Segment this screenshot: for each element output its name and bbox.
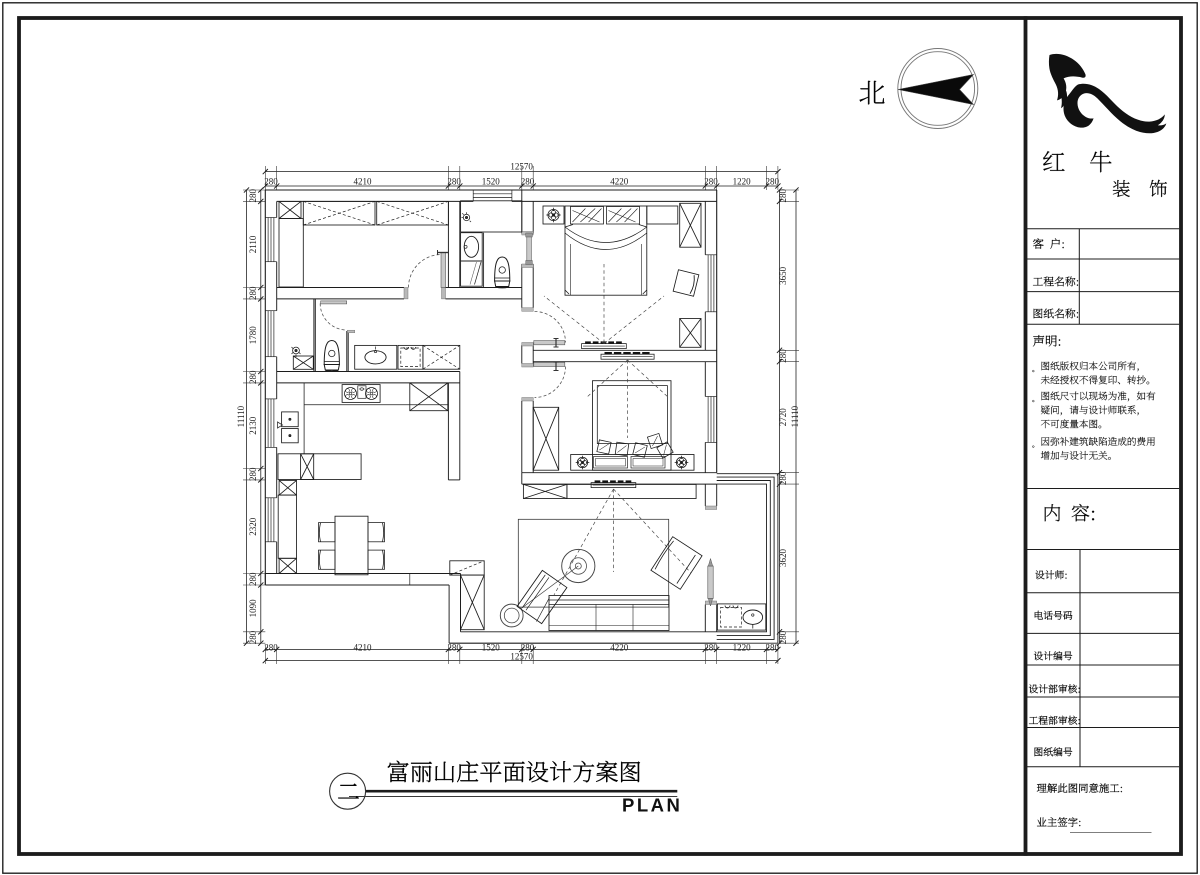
- svg-text:2130: 2130: [248, 416, 258, 435]
- svg-text:1220: 1220: [733, 176, 752, 186]
- svg-text:4220: 4220: [610, 643, 629, 653]
- svg-text:280: 280: [248, 630, 258, 644]
- svg-text:280: 280: [521, 176, 535, 186]
- svg-text:12570: 12570: [510, 651, 533, 661]
- svg-text:280: 280: [248, 188, 258, 202]
- svg-text:3650: 3650: [778, 266, 788, 285]
- svg-text:280: 280: [704, 643, 718, 653]
- svg-text:280: 280: [778, 471, 788, 485]
- svg-text:280: 280: [765, 176, 779, 186]
- svg-text:3620: 3620: [778, 549, 788, 568]
- svg-text:4210: 4210: [354, 643, 373, 653]
- svg-text:2110: 2110: [248, 235, 258, 253]
- svg-text:1220: 1220: [733, 643, 752, 653]
- svg-text:2720: 2720: [778, 408, 788, 427]
- svg-text:280: 280: [248, 370, 258, 384]
- svg-text:280: 280: [264, 643, 278, 653]
- svg-text:280: 280: [248, 286, 258, 300]
- svg-text:11110: 11110: [790, 405, 800, 427]
- svg-text:1520: 1520: [482, 176, 501, 186]
- svg-text:1780: 1780: [248, 326, 258, 345]
- svg-text:PLAN: PLAN: [622, 795, 682, 816]
- svg-text:280: 280: [778, 630, 788, 644]
- svg-text:11110: 11110: [236, 405, 246, 427]
- svg-text:280: 280: [778, 188, 788, 202]
- svg-text:280: 280: [778, 349, 788, 363]
- svg-text:12570: 12570: [510, 161, 533, 171]
- svg-text:280: 280: [264, 176, 278, 186]
- svg-text:280: 280: [447, 643, 461, 653]
- svg-text:280: 280: [704, 176, 718, 186]
- svg-text:280: 280: [447, 176, 461, 186]
- svg-text:2320: 2320: [248, 517, 258, 536]
- svg-text:280: 280: [248, 572, 258, 586]
- svg-text:1520: 1520: [482, 643, 501, 653]
- svg-text:4220: 4220: [610, 176, 629, 186]
- svg-text:4210: 4210: [354, 176, 373, 186]
- svg-text:1090: 1090: [248, 599, 258, 618]
- svg-text:280: 280: [248, 467, 258, 481]
